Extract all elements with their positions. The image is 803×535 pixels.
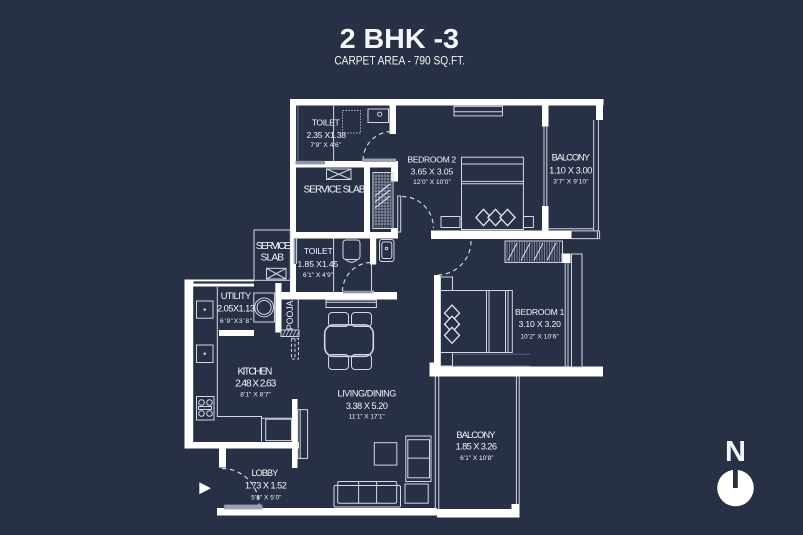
svg-text:1.10 X 3.00: 1.10 X 3.00	[549, 165, 592, 175]
svg-text:8’1” X 8’7”: 8’1” X 8’7”	[240, 392, 271, 399]
svg-text:SERVICE SLAB: SERVICE SLAB	[304, 184, 366, 195]
svg-text:TOILET: TOILET	[304, 246, 334, 256]
svg-text:7’9” X 4’6”: 7’9” X 4’6”	[310, 142, 341, 149]
svg-text:LIVING/DINING: LIVING/DINING	[338, 389, 397, 399]
svg-text:2 BHK -3: 2 BHK -3	[340, 23, 459, 54]
svg-text:CARPET AREA - 790 SQ.FT.: CARPET AREA - 790 SQ.FT.	[334, 54, 465, 68]
svg-text:POOJA: POOJA	[285, 300, 295, 330]
svg-text:6’1” X 4’9”: 6’1” X 4’9”	[303, 272, 333, 279]
svg-text:11’1” X 17’1”: 11’1” X 17’1”	[349, 414, 385, 421]
svg-text:3.65 X 3.05: 3.65 X 3.05	[411, 166, 454, 176]
svg-text:6’1” X 10’8”: 6’1” X 10’8”	[460, 455, 493, 462]
svg-text:LOBBY: LOBBY	[252, 468, 279, 478]
svg-text:3.10 X 3.20: 3.10 X 3.20	[519, 319, 562, 329]
svg-text:SLAB: SLAB	[261, 253, 285, 264]
svg-text:3.38 X 5.20: 3.38 X 5.20	[346, 401, 388, 411]
svg-text:N: N	[725, 436, 746, 468]
svg-text:BALCONY: BALCONY	[552, 153, 590, 163]
svg-text:UTILITY: UTILITY	[221, 291, 252, 301]
svg-text:BALCONY: BALCONY	[456, 430, 495, 440]
svg-text:1.73 X 1.52: 1.73 X 1.52	[245, 480, 287, 490]
svg-text:1.85 X 3.26: 1.85 X 3.26	[456, 442, 497, 452]
svg-text:BEDROOM 1: BEDROOM 1	[515, 307, 565, 317]
svg-text:2.05X1.13: 2.05X1.13	[217, 304, 255, 314]
svg-text:KITCHEN: KITCHEN	[237, 367, 272, 378]
svg-text:TOILET: TOILET	[312, 118, 341, 128]
svg-text:BEDROOM 2: BEDROOM 2	[407, 155, 456, 165]
svg-text:2.35 X1.38: 2.35 X1.38	[307, 130, 347, 140]
svg-text:6’9”X3’8”: 6’9”X3’8”	[220, 318, 252, 325]
svg-text:2.48 X 2.63: 2.48 X 2.63	[235, 379, 277, 390]
svg-text:3’7” X 9’10”: 3’7” X 9’10”	[553, 179, 588, 186]
svg-text:1.85 X1.45: 1.85 X1.45	[298, 259, 339, 269]
svg-text:10’2” X 10’6”: 10’2” X 10’6”	[520, 333, 558, 340]
svg-text:5’8” X 5’0”: 5’8” X 5’0”	[251, 495, 281, 502]
svg-text:SERVICE: SERVICE	[256, 241, 291, 252]
svg-text:12’0” X 10’0”: 12’0” X 10’0”	[413, 179, 451, 186]
